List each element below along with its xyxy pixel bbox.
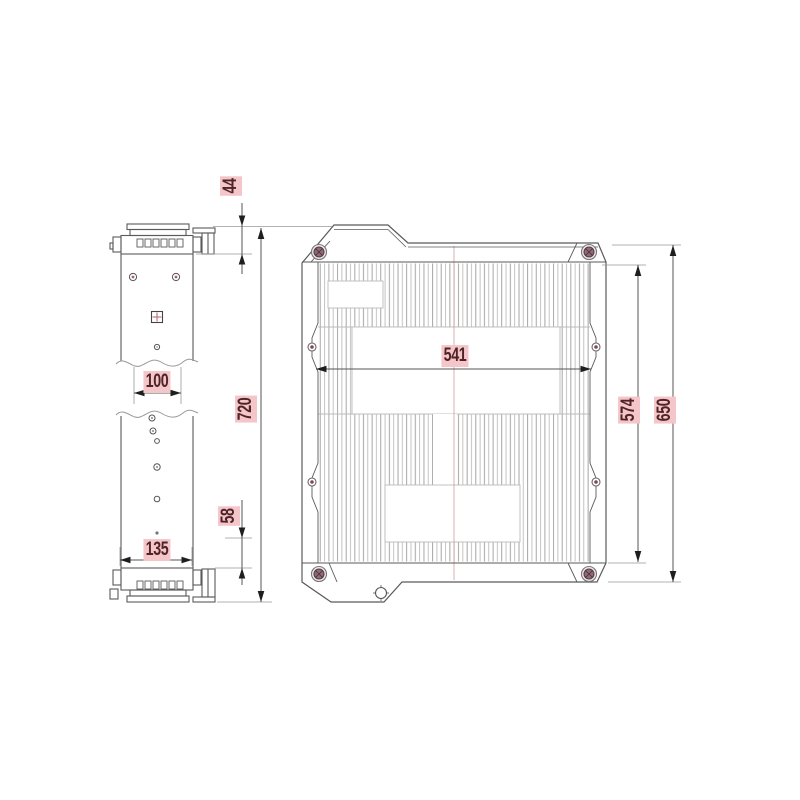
dim-label-541: 541	[441, 345, 468, 367]
dim-label-574: 574	[618, 396, 640, 423]
inlet-connector	[193, 228, 215, 254]
dim-label-135: 135	[143, 539, 170, 561]
tank-crenellations	[137, 239, 183, 247]
dim-label-650: 650	[654, 396, 676, 423]
side-core-column	[116, 254, 198, 568]
bolt-icon	[312, 245, 327, 260]
bolt-icon	[582, 567, 597, 582]
tank-crenellations-bottom	[137, 581, 183, 589]
square-port-symbol	[152, 312, 163, 323]
drawing-canvas	[0, 0, 800, 800]
dim-label-100: 100	[143, 371, 170, 393]
dimension-720	[258, 228, 265, 602]
bolt-icon	[582, 245, 597, 260]
right-frame-profile	[590, 262, 596, 563]
dim-label-720: 720	[235, 395, 257, 422]
front-view	[302, 225, 606, 602]
dim-label-44: 44	[220, 176, 242, 196]
bolt-icon	[312, 567, 327, 582]
dimension-44	[239, 203, 246, 274]
left-frame-profile	[312, 262, 318, 563]
dim-label-58: 58	[218, 506, 240, 526]
side-top-tank	[110, 224, 215, 254]
side-bottom-tank	[110, 568, 215, 602]
technical-drawing-page: 44 720 100 135 58 541 574 650	[0, 0, 800, 800]
